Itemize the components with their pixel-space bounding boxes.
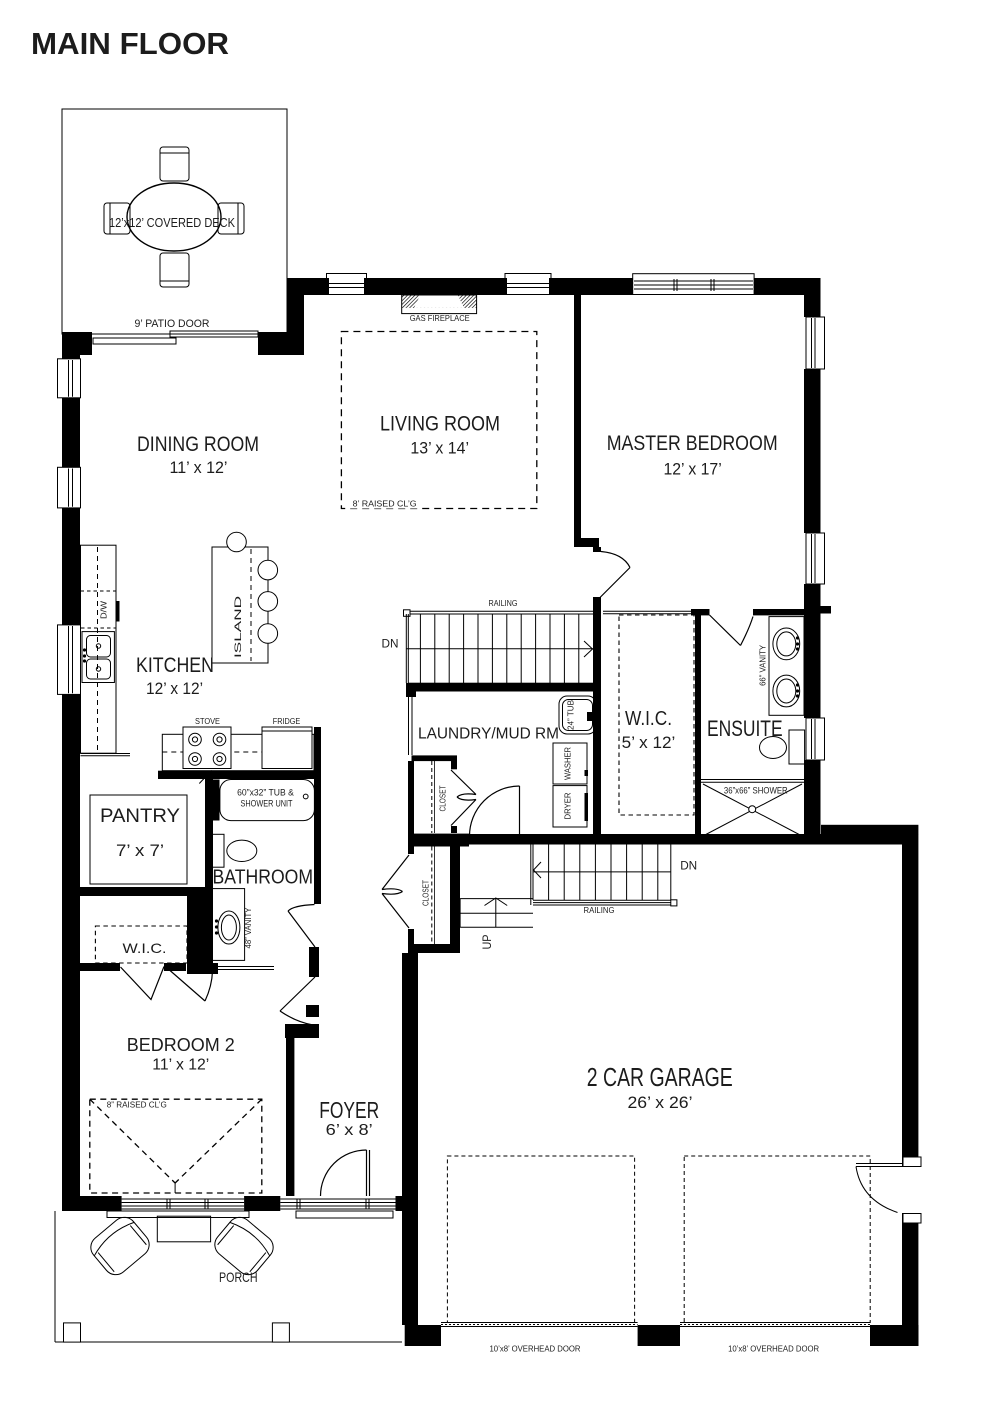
svg-text:FOYER: FOYER [319, 1097, 379, 1123]
svg-text:SHOWER UNIT: SHOWER UNIT [241, 799, 293, 809]
svg-text:RAILING: RAILING [584, 906, 615, 915]
svg-text:48” VANITY: 48” VANITY [244, 907, 253, 949]
svg-text:KITCHEN: KITCHEN [136, 654, 214, 677]
svg-text:W.I.C.: W.I.C. [625, 708, 672, 730]
svg-text:LAUNDRY/MUD RM: LAUNDRY/MUD RM [418, 726, 559, 743]
svg-text:12’ x 17’: 12’ x 17’ [663, 459, 721, 478]
svg-text:66” VANITY: 66” VANITY [759, 644, 768, 686]
svg-text:36”x66” SHOWER: 36”x66” SHOWER [724, 786, 788, 796]
svg-text:10’x8’ OVERHEAD DOOR: 10’x8’ OVERHEAD DOOR [490, 1345, 581, 1354]
svg-text:11’ x 12’: 11’ x 12’ [152, 1056, 209, 1073]
svg-text:CLOSET: CLOSET [422, 880, 431, 906]
svg-text:PANTRY: PANTRY [100, 806, 180, 827]
svg-text:6’ x 8’: 6’ x 8’ [326, 1122, 373, 1139]
svg-text:8” RAISED CL’G: 8” RAISED CL’G [107, 1101, 167, 1110]
svg-text:D/W: D/W [100, 600, 109, 619]
svg-text:2 CAR GARAGE: 2 CAR GARAGE [587, 1062, 733, 1092]
svg-text:DINING ROOM: DINING ROOM [137, 433, 259, 456]
svg-text:BATHROOM: BATHROOM [213, 866, 314, 889]
svg-text:PORCH: PORCH [219, 1269, 258, 1285]
svg-text:24” TUB: 24” TUB [567, 700, 576, 730]
svg-text:12’ x 12’: 12’ x 12’ [146, 679, 203, 698]
svg-text:13’ x 14’: 13’ x 14’ [410, 439, 469, 458]
svg-text:DN: DN [382, 637, 399, 651]
svg-text:FRIDGE: FRIDGE [273, 717, 301, 726]
svg-text:MASTER BEDROOM: MASTER BEDROOM [607, 432, 778, 455]
svg-text:26’ x 26’: 26’ x 26’ [628, 1093, 693, 1112]
svg-text:GAS FIREPLACE: GAS FIREPLACE [410, 313, 470, 323]
svg-text:RAILING: RAILING [489, 599, 518, 608]
svg-text:STOVE: STOVE [195, 717, 220, 726]
svg-text:MAIN FLOOR: MAIN FLOOR [31, 26, 229, 61]
svg-text:ISLAND: ISLAND [233, 595, 243, 658]
svg-text:8’ RAISED CL’G: 8’ RAISED CL’G [353, 499, 417, 509]
svg-text:ENSUITE: ENSUITE [707, 716, 783, 741]
svg-text:LIVING ROOM: LIVING ROOM [380, 413, 500, 436]
svg-text:12’x12’ COVERED DECK: 12’x12’ COVERED DECK [109, 216, 236, 230]
svg-text:7’ x 7’: 7’ x 7’ [116, 841, 164, 860]
svg-text:5’ x 12’: 5’ x 12’ [622, 733, 676, 752]
svg-text:60”x32” TUB &: 60”x32” TUB & [237, 788, 294, 798]
svg-text:UP: UP [480, 935, 494, 950]
svg-text:CLOSET: CLOSET [439, 785, 448, 811]
svg-text:DRYER: DRYER [563, 793, 573, 820]
svg-text:11’ x 12’: 11’ x 12’ [170, 458, 228, 477]
svg-text:BEDROOM 2: BEDROOM 2 [127, 1035, 235, 1055]
svg-text:W.I.C.: W.I.C. [123, 940, 167, 956]
svg-text:9’ PATIO DOOR: 9’ PATIO DOOR [135, 318, 210, 330]
svg-text:10’x8’ OVERHEAD DOOR: 10’x8’ OVERHEAD DOOR [728, 1345, 819, 1354]
svg-text:DN: DN [680, 859, 697, 873]
svg-text:WASHER: WASHER [563, 747, 573, 780]
